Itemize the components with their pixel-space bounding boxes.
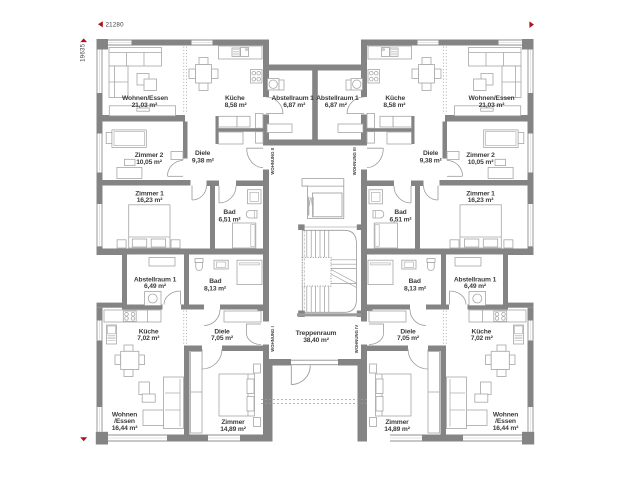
svg-text:Bad: Bad	[394, 209, 406, 216]
svg-text:6,51 m²: 6,51 m²	[219, 216, 242, 223]
svg-text:Bad: Bad	[209, 278, 221, 285]
svg-text:7,02 m²: 7,02 m²	[471, 335, 494, 342]
svg-text:8,13 m²: 8,13 m²	[404, 286, 427, 293]
svg-text:Diele: Diele	[423, 150, 439, 157]
svg-text:14,89 m²: 14,89 m²	[384, 426, 410, 433]
svg-text:8,58 m²: 8,58 m²	[225, 102, 248, 109]
svg-text:Diele: Diele	[195, 150, 211, 157]
svg-text:9,38 m²: 9,38 m²	[420, 157, 443, 164]
svg-text:6,51 m²: 6,51 m²	[390, 216, 413, 223]
svg-text:38,40 m²: 38,40 m²	[303, 337, 329, 344]
svg-text:10,05 m²: 10,05 m²	[136, 159, 162, 166]
svg-text:21,03 m²: 21,03 m²	[479, 102, 505, 109]
svg-text:7,05 m²: 7,05 m²	[397, 335, 420, 342]
svg-text:14,89 m²: 14,89 m²	[220, 426, 246, 433]
svg-text:6,87 m²: 6,87 m²	[325, 102, 348, 109]
svg-text:8,13 m²: 8,13 m²	[204, 286, 227, 293]
svg-text:19635: 19635	[80, 43, 87, 62]
svg-text:Bad: Bad	[409, 278, 421, 285]
svg-text:WOHNUNG III: WOHNUNG III	[352, 147, 357, 175]
svg-text:7,02 m²: 7,02 m²	[137, 335, 160, 342]
svg-text:6,49 m²: 6,49 m²	[144, 283, 167, 290]
svg-text:6,87 m²: 6,87 m²	[283, 102, 306, 109]
svg-text:WOHNUNG I: WOHNUNG I	[270, 326, 275, 352]
svg-text:16,44 m²: 16,44 m²	[493, 425, 519, 432]
svg-text:16,23 m²: 16,23 m²	[137, 197, 163, 204]
svg-text:WOHNUNG IV: WOHNUNG IV	[354, 325, 359, 354]
svg-text:WOHNUNG II: WOHNUNG II	[270, 148, 275, 175]
svg-text:21,03 m²: 21,03 m²	[132, 102, 158, 109]
svg-text:9,38 m²: 9,38 m²	[192, 157, 215, 164]
svg-text:6,49 m²: 6,49 m²	[464, 283, 487, 290]
svg-text:16,44 m²: 16,44 m²	[112, 425, 138, 432]
svg-text:7,05 m²: 7,05 m²	[211, 335, 234, 342]
svg-text:10,05 m²: 10,05 m²	[468, 159, 494, 166]
svg-text:8,58 m²: 8,58 m²	[383, 102, 406, 109]
svg-text:16,23 m²: 16,23 m²	[468, 197, 494, 204]
svg-text:Bad: Bad	[223, 209, 235, 216]
svg-text:21280: 21280	[106, 22, 125, 29]
